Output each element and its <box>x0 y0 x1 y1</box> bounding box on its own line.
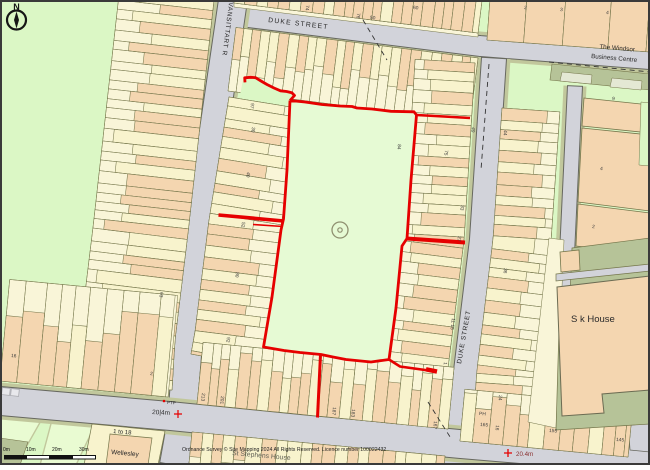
svg-text:213: 213 <box>199 393 206 402</box>
svg-text:30: 30 <box>249 127 256 133</box>
svg-text:20m: 20m <box>52 447 62 453</box>
svg-text:97: 97 <box>248 103 255 109</box>
svg-text:201: 201 <box>218 396 225 405</box>
svg-text:N: N <box>13 2 20 12</box>
svg-text:16: 16 <box>494 425 500 431</box>
svg-text:165: 165 <box>480 422 489 429</box>
svg-text:50: 50 <box>370 15 376 21</box>
svg-text:145: 145 <box>616 437 625 444</box>
svg-text:20.4m: 20.4m <box>516 451 533 458</box>
svg-text:60: 60 <box>413 5 419 11</box>
svg-text:20|4m: 20|4m <box>152 409 170 417</box>
svg-text:33: 33 <box>458 205 465 211</box>
svg-text:75: 75 <box>442 150 449 156</box>
svg-text:24: 24 <box>497 395 503 401</box>
svg-text:16: 16 <box>11 353 17 359</box>
svg-text:10m: 10m <box>26 447 36 453</box>
svg-text:30m: 30m <box>79 447 89 453</box>
svg-text:27: 27 <box>455 236 462 242</box>
svg-text:PTP: PTP <box>167 400 176 405</box>
svg-text:155: 155 <box>549 428 558 435</box>
svg-text:167: 167 <box>431 421 438 430</box>
svg-text:36: 36 <box>502 268 508 274</box>
svg-text:76: 76 <box>355 13 361 19</box>
svg-text:52: 52 <box>239 222 246 228</box>
svg-text:40: 40 <box>244 172 251 178</box>
svg-text:0m: 0m <box>3 447 10 453</box>
svg-text:63: 63 <box>158 292 164 298</box>
svg-text:84: 84 <box>395 144 402 150</box>
svg-text:74: 74 <box>304 5 310 11</box>
svg-text:183: 183 <box>349 409 356 418</box>
svg-text:49: 49 <box>469 127 476 133</box>
svg-text:80: 80 <box>233 272 240 278</box>
svg-text:44: 44 <box>502 130 508 136</box>
svg-text:92: 92 <box>224 337 231 343</box>
svg-text:187: 187 <box>330 407 337 416</box>
svg-text:PH: PH <box>479 411 487 417</box>
svg-text:Ordnance Survey © Site Mapping: Ordnance Survey © Site Mapping 2024 All … <box>182 446 386 453</box>
svg-text:S k House: S k House <box>571 314 615 325</box>
